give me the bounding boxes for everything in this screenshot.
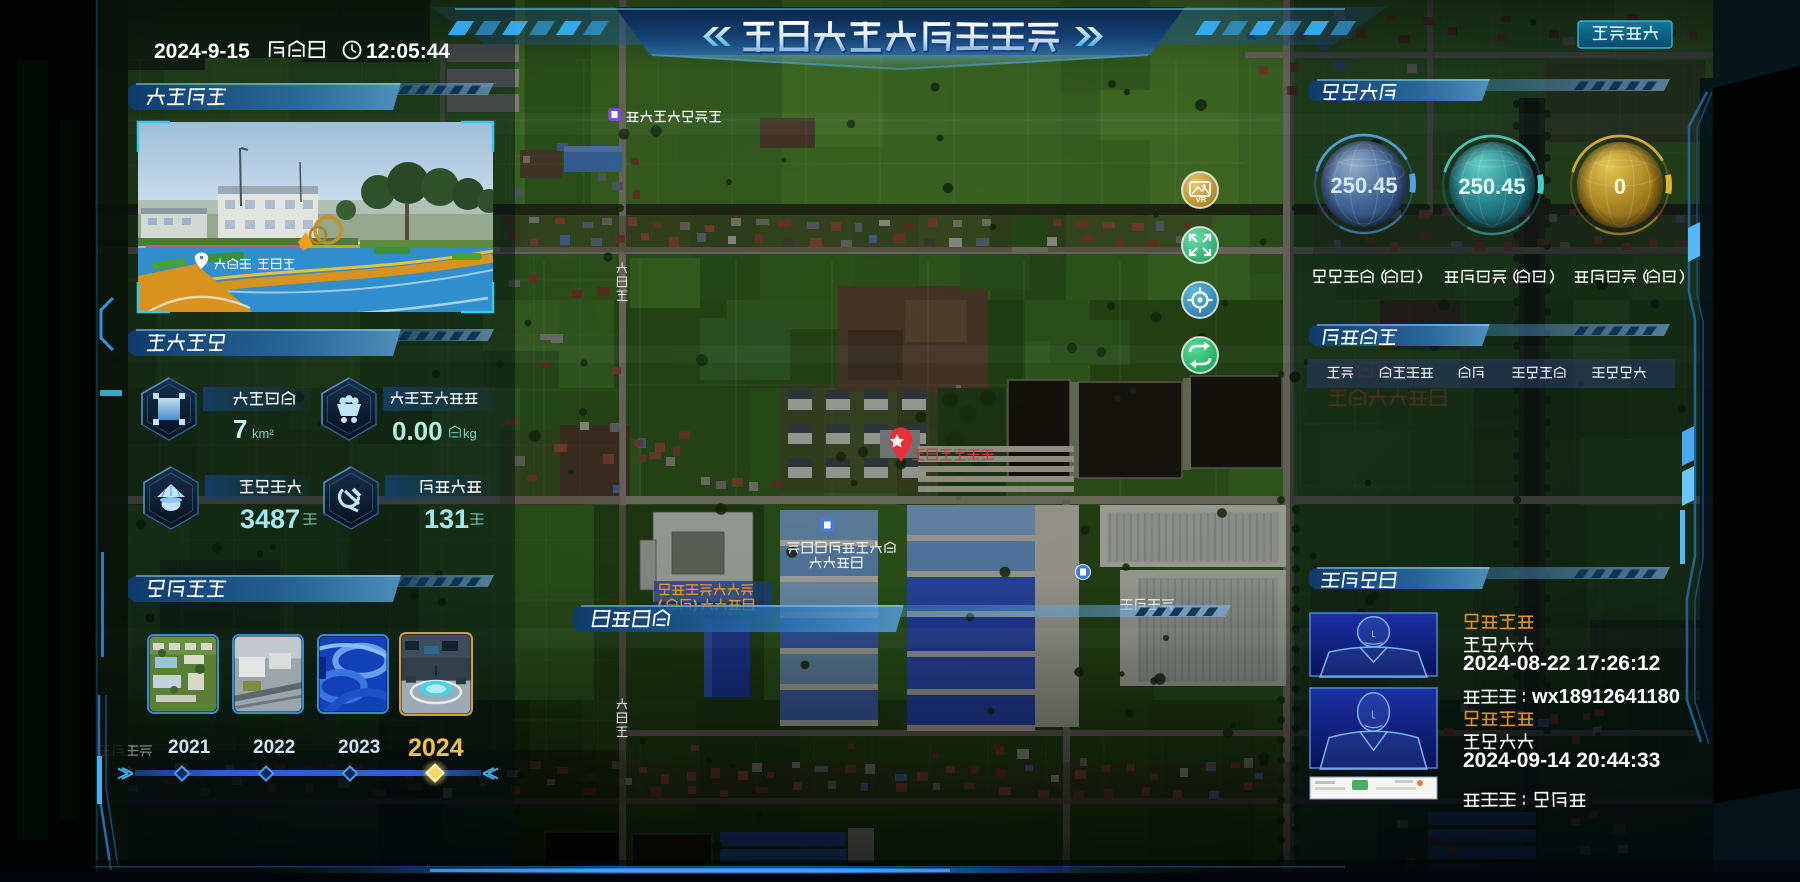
svg-text:km²: km² [252, 426, 274, 441]
svg-text:7: 7 [233, 414, 247, 444]
svg-text:2024-09-14 20:44:33: 2024-09-14 20:44:33 [1463, 749, 1660, 772]
svg-text:12:05:44: 12:05:44 [366, 40, 450, 63]
svg-text:2024-08-22 17:26:12: 2024-08-22 17:26:12 [1463, 652, 1660, 675]
svg-text:3487: 3487 [240, 504, 300, 534]
svg-text:2021: 2021 [168, 737, 211, 758]
svg-text:2022: 2022 [253, 737, 295, 758]
svg-text:250.45: 250.45 [1330, 173, 1397, 198]
svg-text:131: 131 [424, 504, 469, 534]
svg-text:wx18912641180: wx18912641180 [1531, 686, 1680, 708]
svg-text:kg: kg [463, 426, 477, 441]
svg-text:0.00: 0.00 [392, 416, 443, 446]
svg-text:0: 0 [1614, 174, 1626, 199]
svg-text:VR: VR [1196, 195, 1207, 204]
svg-text:2023: 2023 [338, 737, 380, 758]
svg-text:2024-9-15: 2024-9-15 [154, 40, 250, 63]
svg-text:2024: 2024 [408, 734, 464, 762]
svg-text:250.45: 250.45 [1458, 174, 1525, 199]
